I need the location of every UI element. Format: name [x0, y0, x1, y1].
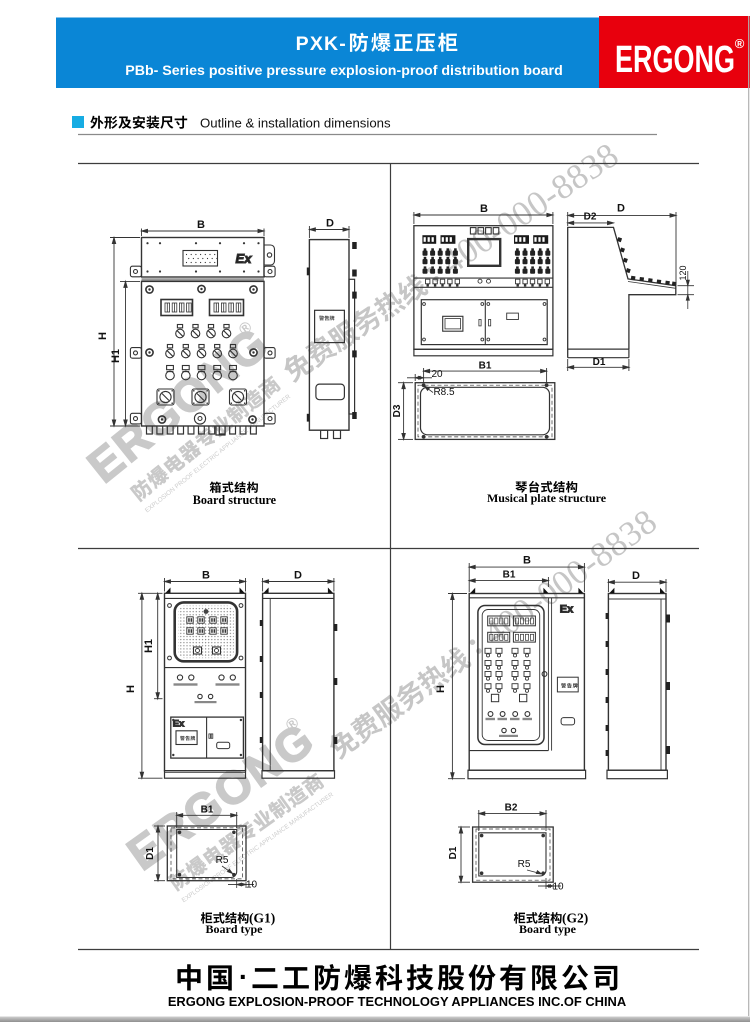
svg-text:D: D: [632, 570, 640, 582]
svg-text:PBb- Series positive pressure: PBb- Series positive pressure explosion-…: [125, 63, 563, 79]
svg-text:Board structure: Board structure: [193, 493, 277, 507]
svg-text:20: 20: [431, 369, 443, 380]
svg-text:B2: B2: [505, 803, 518, 814]
svg-text:ERGONG EXPLOSION-PROOF TECH: ERGONG EXPLOSION-PROOF TECHNOLOGY APPLIA…: [168, 994, 626, 1009]
svg-text:B1: B1: [479, 361, 492, 372]
svg-text:Ex: Ex: [560, 604, 574, 616]
svg-text:H: H: [435, 685, 447, 693]
svg-text:PXK-: PXK-: [296, 33, 347, 55]
svg-text:Outline & installation dimensi: Outline & installation dimensions: [200, 116, 391, 131]
svg-text:Musical plate structure: Musical plate structure: [487, 491, 607, 505]
svg-text:R8.5: R8.5: [433, 387, 455, 398]
svg-text:H1: H1: [110, 349, 122, 363]
svg-text:H: H: [125, 685, 137, 693]
svg-text:®: ®: [735, 36, 745, 51]
svg-text:B: B: [480, 203, 488, 215]
svg-text:Ex: Ex: [173, 718, 185, 729]
svg-text:B: B: [202, 570, 210, 582]
svg-text:H: H: [97, 332, 109, 340]
svg-text:D2: D2: [584, 212, 597, 223]
svg-text:B: B: [523, 555, 531, 567]
svg-text:D1: D1: [448, 846, 459, 859]
svg-text:B1: B1: [503, 570, 516, 581]
svg-text:B1: B1: [201, 805, 214, 816]
svg-text:Board type: Board type: [206, 922, 264, 936]
svg-text:ERGONG: ERGONG: [615, 39, 735, 81]
svg-text:H1: H1: [143, 639, 155, 653]
svg-text:B: B: [197, 219, 205, 231]
svg-text:10: 10: [246, 880, 258, 891]
svg-text:D1: D1: [145, 847, 156, 860]
svg-text:D: D: [326, 218, 334, 230]
svg-text:R5: R5: [518, 859, 531, 870]
svg-text:R5: R5: [216, 855, 229, 866]
svg-text:400-000-8838: 400-000-8838: [434, 135, 625, 282]
svg-text:10: 10: [552, 882, 564, 893]
svg-text:·: ·: [239, 961, 248, 992]
svg-text:D1: D1: [593, 357, 606, 368]
svg-text:Ex: Ex: [236, 251, 253, 266]
svg-text:D: D: [294, 570, 302, 582]
svg-text:120: 120: [678, 265, 688, 280]
svg-text:D: D: [617, 203, 625, 215]
svg-text:D3: D3: [392, 404, 403, 417]
svg-text:Board type: Board type: [519, 922, 577, 936]
